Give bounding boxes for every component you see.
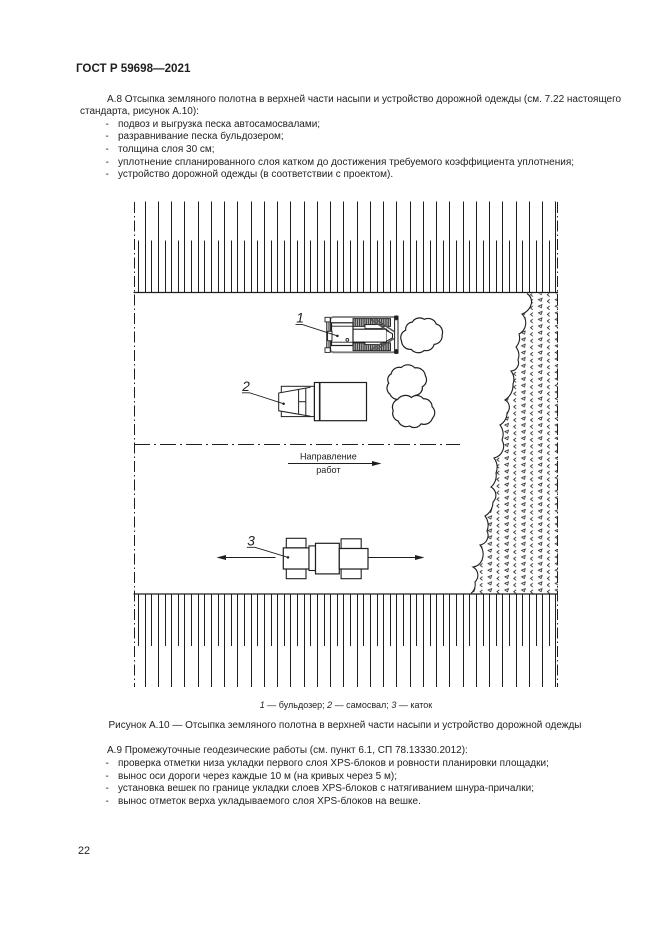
svg-text:Направление: Направление (300, 452, 357, 462)
svg-text:2: 2 (241, 379, 250, 394)
svg-text:1: 1 (296, 311, 304, 326)
svg-text:3: 3 (247, 534, 255, 549)
svg-text:работ: работ (316, 465, 341, 475)
